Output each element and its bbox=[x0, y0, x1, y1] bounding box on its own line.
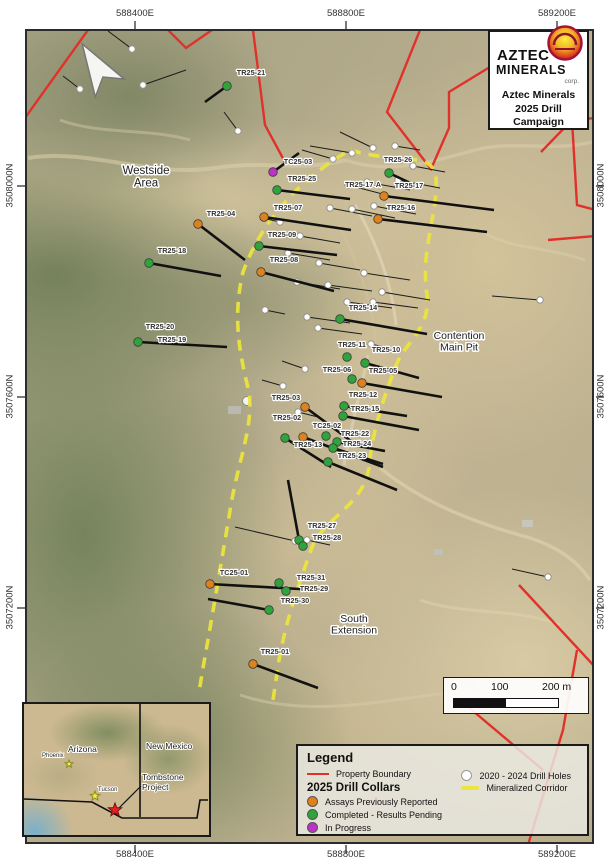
scale-tick-200: 200 m bbox=[542, 681, 571, 693]
legend-label: Completed - Results Pending bbox=[325, 810, 442, 820]
coord-label-right-2: 3507200N bbox=[596, 579, 607, 637]
brand-name-bottom: MINERALS bbox=[496, 63, 566, 77]
legend-label: Mineralized Corridor bbox=[486, 783, 567, 793]
legend-label: Assays Previously Reported bbox=[325, 797, 438, 807]
corridor-swatch bbox=[461, 786, 479, 790]
old-hole-dot-swatch bbox=[461, 770, 472, 781]
legend-item-completed: Completed - Results Pending bbox=[307, 809, 461, 820]
inset-label: Phoenix bbox=[42, 753, 64, 759]
map-sheet: 588400E 588800E 589200E 588400E 588800E … bbox=[0, 0, 611, 864]
legend-item-2020-2024-holes: 2020 - 2024 Drill Holes bbox=[461, 770, 578, 781]
map-title-line: Aztec Minerals bbox=[490, 89, 587, 103]
map-title-line: Campaign bbox=[490, 116, 587, 130]
scale-tick-0: 0 bbox=[451, 681, 457, 693]
coord-label-top-0: 588400E bbox=[106, 8, 164, 19]
property-boundary-swatch bbox=[307, 773, 329, 775]
completed-dot-swatch bbox=[307, 809, 318, 820]
legend: Legend Property Boundary 2025 Drill Coll… bbox=[296, 744, 589, 836]
coord-label-top-2: 589200E bbox=[528, 8, 586, 19]
title-box: AZTEC MINERALS corp. Aztec Minerals 2025… bbox=[488, 30, 589, 130]
inset-leader-line bbox=[119, 786, 141, 808]
legend-label: Property Boundary bbox=[336, 769, 411, 779]
coord-label-left-0: 3508000N bbox=[5, 157, 16, 215]
map-title-line: 2025 Drill bbox=[490, 103, 587, 117]
legend-label: In Progress bbox=[325, 823, 371, 833]
coord-label-left-1: 3507600N bbox=[5, 368, 16, 426]
legend-item-in-progress: In Progress bbox=[307, 822, 461, 833]
legend-title: Legend bbox=[307, 750, 578, 765]
city-star-icon bbox=[65, 760, 73, 767]
coord-label-bottom-0: 588400E bbox=[106, 849, 164, 860]
coord-label-right-0: 3508000N bbox=[596, 157, 607, 215]
in-progress-dot-swatch bbox=[307, 822, 318, 833]
brand-name-top: AZTEC bbox=[497, 47, 550, 64]
inset-label: Project bbox=[142, 782, 169, 792]
brand-corp-suffix: corp. bbox=[565, 78, 579, 85]
scale-tick-100: 100 bbox=[491, 681, 509, 693]
inset-label: Tombstone bbox=[142, 772, 184, 782]
aztec-minerals-logo-icon bbox=[546, 24, 584, 62]
scale-bar-graphic bbox=[453, 698, 559, 708]
legend-item-property-boundary: Property Boundary bbox=[307, 769, 461, 779]
scale-bar: 0 100 200 m bbox=[443, 677, 589, 714]
coord-label-left-2: 3507200N bbox=[5, 579, 16, 637]
inset-label: New Mexico bbox=[146, 741, 193, 751]
coord-label-right-1: 3507600N bbox=[596, 368, 607, 426]
coord-label-top-1: 588800E bbox=[317, 8, 375, 19]
inset-label: Arizona bbox=[68, 744, 97, 754]
legend-item-corridor: Mineralized Corridor bbox=[461, 783, 578, 793]
inset-location-map: PhoenixArizonaNew MexicoTucsonTombstoneP… bbox=[22, 702, 211, 837]
legend-item-assays: Assays Previously Reported bbox=[307, 796, 461, 807]
assays-dot-swatch bbox=[307, 796, 318, 807]
coord-label-bottom-1: 588800E bbox=[317, 849, 375, 860]
inset-label: Tucson bbox=[98, 787, 117, 793]
legend-label: 2020 - 2024 Drill Holes bbox=[479, 771, 571, 781]
legend-subheader-2025: 2025 Drill Collars bbox=[307, 782, 461, 794]
coord-label-bottom-2: 589200E bbox=[528, 849, 586, 860]
map-title: Aztec Minerals 2025 Drill Campaign bbox=[490, 89, 587, 130]
inset-map-graphics: PhoenixArizonaNew MexicoTucsonTombstoneP… bbox=[24, 704, 208, 834]
